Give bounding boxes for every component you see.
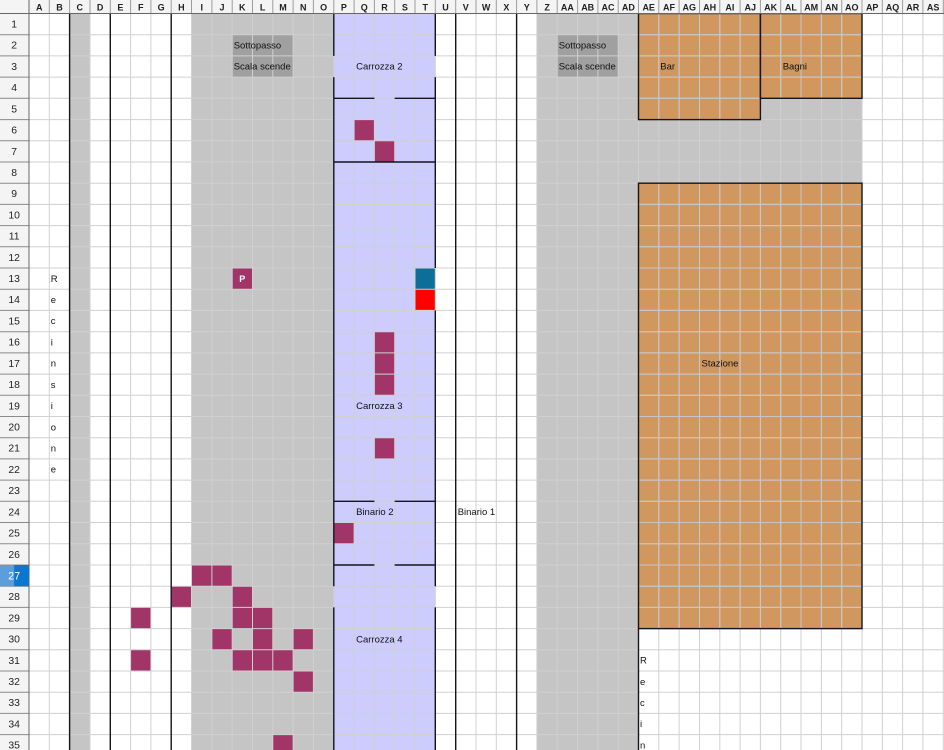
svg-text:17: 17 xyxy=(8,359,20,370)
svg-text:7: 7 xyxy=(11,147,17,158)
svg-text:T: T xyxy=(422,3,428,13)
svg-text:C: C xyxy=(77,3,84,13)
svg-text:27: 27 xyxy=(8,570,20,582)
svg-text:Carrozza 2: Carrozza 2 xyxy=(356,62,402,73)
svg-text:F: F xyxy=(138,3,144,13)
svg-text:AG: AG xyxy=(683,3,697,13)
svg-text:U: U xyxy=(442,3,449,13)
svg-text:12: 12 xyxy=(8,253,20,264)
svg-text:n: n xyxy=(51,444,56,455)
svg-text:AB: AB xyxy=(581,3,594,13)
svg-text:AN: AN xyxy=(825,3,838,13)
svg-text:24: 24 xyxy=(8,507,20,518)
svg-text:26: 26 xyxy=(8,550,20,561)
svg-text:14: 14 xyxy=(8,295,20,306)
svg-text:8: 8 xyxy=(11,168,17,179)
svg-text:Binario 2: Binario 2 xyxy=(356,507,394,518)
svg-text:Bagni: Bagni xyxy=(783,62,807,73)
svg-text:15: 15 xyxy=(8,316,20,327)
svg-text:Stazione: Stazione xyxy=(702,359,739,370)
svg-text:J: J xyxy=(219,3,224,13)
svg-text:X: X xyxy=(503,3,509,13)
svg-text:c: c xyxy=(51,316,56,327)
svg-text:28: 28 xyxy=(8,592,20,603)
svg-text:1: 1 xyxy=(11,20,17,31)
svg-text:B: B xyxy=(56,3,63,13)
svg-text:18: 18 xyxy=(8,380,20,391)
svg-text:13: 13 xyxy=(8,274,20,285)
svg-text:33: 33 xyxy=(8,698,20,709)
svg-text:31: 31 xyxy=(8,656,20,667)
svg-text:35: 35 xyxy=(8,741,20,750)
svg-text:34: 34 xyxy=(8,719,20,730)
svg-text:i: i xyxy=(51,401,53,412)
svg-text:e: e xyxy=(640,677,645,688)
svg-text:Q: Q xyxy=(361,3,368,13)
svg-text:Sottopasso: Sottopasso xyxy=(559,41,607,52)
svg-text:n: n xyxy=(51,359,56,370)
svg-text:I: I xyxy=(200,3,203,13)
svg-text:AA: AA xyxy=(561,3,574,13)
svg-text:R: R xyxy=(640,656,647,667)
svg-text:Carrozza 3: Carrozza 3 xyxy=(356,401,402,412)
svg-text:25: 25 xyxy=(8,529,20,540)
svg-text:10: 10 xyxy=(8,210,20,221)
svg-text:Binario 1: Binario 1 xyxy=(458,507,496,518)
svg-text:AC: AC xyxy=(602,3,615,13)
svg-text:4: 4 xyxy=(11,83,17,94)
svg-text:i: i xyxy=(640,719,642,730)
svg-text:c: c xyxy=(640,698,645,709)
svg-text:Z: Z xyxy=(544,3,550,13)
svg-text:32: 32 xyxy=(8,677,20,688)
svg-text:19: 19 xyxy=(8,401,20,412)
svg-text:i: i xyxy=(51,338,53,349)
svg-text:Sottopasso: Sottopasso xyxy=(234,41,282,52)
svg-text:R: R xyxy=(381,3,388,13)
svg-text:AO: AO xyxy=(845,3,859,13)
svg-text:11: 11 xyxy=(9,232,20,243)
svg-text:AQ: AQ xyxy=(886,3,900,13)
svg-text:s: s xyxy=(51,380,56,391)
svg-text:R: R xyxy=(51,274,58,285)
svg-text:23: 23 xyxy=(8,486,20,497)
svg-text:e: e xyxy=(51,465,56,476)
svg-text:M: M xyxy=(279,3,287,13)
svg-text:AH: AH xyxy=(703,3,716,13)
svg-text:n: n xyxy=(640,740,645,750)
svg-text:AF: AF xyxy=(663,3,675,13)
svg-text:Carrozza 4: Carrozza 4 xyxy=(356,634,402,645)
svg-text:21: 21 xyxy=(8,444,20,455)
svg-text:29: 29 xyxy=(8,613,20,624)
svg-text:9: 9 xyxy=(11,189,17,200)
svg-text:30: 30 xyxy=(8,635,20,646)
svg-text:AK: AK xyxy=(764,3,777,13)
svg-text:5: 5 xyxy=(11,104,17,115)
svg-text:22: 22 xyxy=(8,465,20,476)
svg-text:P: P xyxy=(341,3,347,13)
svg-text:e: e xyxy=(51,295,56,306)
svg-text:AM: AM xyxy=(804,3,818,13)
svg-text:3: 3 xyxy=(11,62,17,73)
svg-text:AD: AD xyxy=(622,3,635,13)
svg-text:AI: AI xyxy=(725,3,734,13)
svg-text:S: S xyxy=(402,3,408,13)
svg-text:D: D xyxy=(97,3,104,13)
svg-text:AE: AE xyxy=(642,3,655,13)
svg-text:H: H xyxy=(178,3,185,13)
svg-text:O: O xyxy=(320,3,327,13)
svg-text:Bar: Bar xyxy=(660,62,675,73)
svg-text:W: W xyxy=(482,3,491,13)
svg-text:P: P xyxy=(239,274,245,284)
svg-text:Y: Y xyxy=(524,3,530,13)
svg-text:L: L xyxy=(260,3,266,13)
svg-text:AR: AR xyxy=(906,3,919,13)
svg-text:Scala scende: Scala scende xyxy=(559,62,616,73)
svg-text:AP: AP xyxy=(866,3,879,13)
svg-text:A: A xyxy=(36,3,43,13)
svg-text:AJ: AJ xyxy=(745,3,757,13)
svg-text:E: E xyxy=(117,3,123,13)
svg-text:K: K xyxy=(239,3,246,13)
svg-text:G: G xyxy=(158,3,165,13)
svg-text:AS: AS xyxy=(927,3,940,13)
svg-text:AL: AL xyxy=(785,3,797,13)
svg-text:6: 6 xyxy=(11,126,17,137)
svg-text:o: o xyxy=(51,422,56,433)
svg-text:V: V xyxy=(463,3,469,13)
svg-text:N: N xyxy=(300,3,307,13)
svg-text:2: 2 xyxy=(11,41,17,52)
svg-text:20: 20 xyxy=(8,423,20,434)
svg-text:Scala scende: Scala scende xyxy=(234,62,291,73)
svg-text:16: 16 xyxy=(8,338,20,349)
